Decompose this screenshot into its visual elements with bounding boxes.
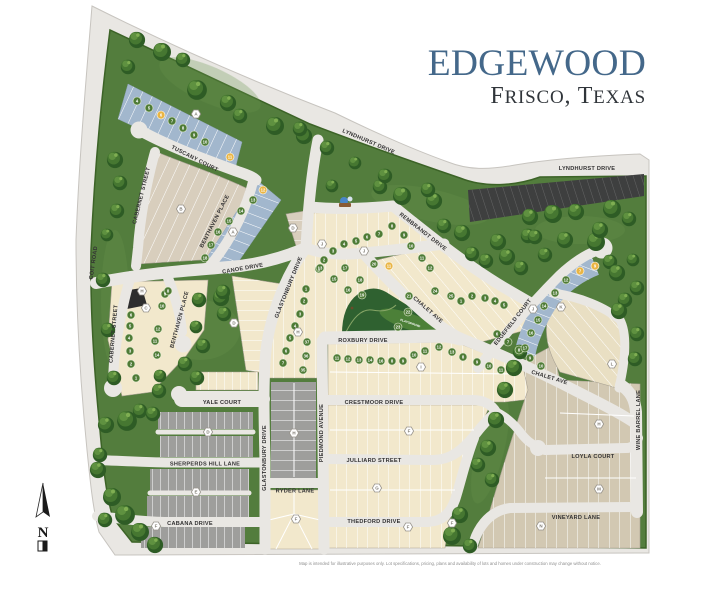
svg-text:13: 13 <box>450 350 455 355</box>
svg-text:H: H <box>292 431 295 436</box>
svg-text:11: 11 <box>335 356 340 361</box>
svg-text:E: E <box>194 490 197 495</box>
svg-text:18: 18 <box>203 256 208 261</box>
svg-text:17: 17 <box>343 266 348 271</box>
svg-text:25: 25 <box>449 294 454 299</box>
svg-text:JULLIARD STREET: JULLIARD STREET <box>346 458 401 464</box>
svg-text:16: 16 <box>346 288 351 293</box>
svg-text:RYDER LANE: RYDER LANE <box>276 489 315 495</box>
svg-text:20: 20 <box>372 262 377 267</box>
svg-text:F: F <box>451 521 454 526</box>
svg-text:15: 15 <box>536 318 541 323</box>
svg-text:14: 14 <box>368 358 373 363</box>
svg-text:18: 18 <box>358 278 363 283</box>
svg-text:12: 12 <box>156 327 161 332</box>
svg-text:13: 13 <box>251 198 256 203</box>
svg-text:10: 10 <box>409 244 414 249</box>
svg-text:L: L <box>611 362 614 367</box>
svg-text:CRESTMOOR DRIVE: CRESTMOOR DRIVE <box>345 400 404 406</box>
svg-text:F: F <box>407 525 410 530</box>
svg-text:21: 21 <box>407 294 412 299</box>
svg-text:10: 10 <box>203 140 208 145</box>
svg-text:11: 11 <box>423 349 428 354</box>
svg-text:THEDFORD DRIVE: THEDFORD DRIVE <box>347 519 400 525</box>
svg-text:23: 23 <box>396 325 401 330</box>
svg-text:11: 11 <box>420 256 425 261</box>
svg-text:ROXBURY DRIVE: ROXBURY DRIVE <box>338 338 388 344</box>
svg-text:CABANA DRIVE: CABANA DRIVE <box>167 521 213 527</box>
svg-text:14: 14 <box>155 353 160 358</box>
svg-text:14: 14 <box>542 304 547 309</box>
svg-text:H: H <box>296 330 299 335</box>
svg-text:YALE COURT: YALE COURT <box>203 400 242 406</box>
svg-text:PIEDMOND AVENUE: PIEDMOND AVENUE <box>319 404 325 462</box>
svg-text:H: H <box>140 289 143 294</box>
svg-text:F: F <box>155 524 158 529</box>
svg-text:N: N <box>38 525 49 541</box>
svg-text:I: I <box>420 365 421 370</box>
svg-text:24: 24 <box>433 289 438 294</box>
svg-text:Map is intended for illustrati: Map is intended for illustrative purpose… <box>299 561 601 566</box>
svg-text:WINE BARREL LANE: WINE BARREL LANE <box>636 390 642 450</box>
svg-text:12: 12 <box>437 345 442 350</box>
svg-text:35: 35 <box>301 368 306 373</box>
svg-text:G: G <box>375 486 379 491</box>
svg-text:15: 15 <box>332 277 337 282</box>
svg-text:11: 11 <box>228 155 233 160</box>
svg-text:17: 17 <box>209 243 214 248</box>
svg-text:17: 17 <box>523 346 528 351</box>
svg-text:LYNDHURST DRIVE: LYNDHURST DRIVE <box>559 166 615 172</box>
svg-text:FRISCO, TEXAS: FRISCO, TEXAS <box>490 83 646 109</box>
svg-text:13: 13 <box>357 358 362 363</box>
svg-text:M: M <box>597 487 601 492</box>
svg-text:12: 12 <box>261 188 266 193</box>
svg-text:10: 10 <box>412 353 417 358</box>
svg-text:16: 16 <box>529 331 534 336</box>
svg-text:13: 13 <box>318 266 323 271</box>
svg-text:19: 19 <box>360 293 365 298</box>
svg-text:11: 11 <box>387 264 392 269</box>
svg-text:12: 12 <box>346 357 351 362</box>
svg-text:13: 13 <box>553 291 558 296</box>
svg-text:10: 10 <box>539 364 544 369</box>
svg-text:11: 11 <box>153 339 158 344</box>
svg-text:10: 10 <box>160 304 165 309</box>
svg-text:10: 10 <box>487 364 492 369</box>
svg-text:16: 16 <box>379 359 384 364</box>
svg-text:37: 37 <box>305 340 310 345</box>
svg-text:14: 14 <box>239 209 244 214</box>
svg-text:SHERPERDS HILL LANE: SHERPERDS HILL LANE <box>170 462 240 468</box>
svg-text:H: H <box>597 422 600 427</box>
svg-text:12: 12 <box>428 266 433 271</box>
svg-text:GLASTONBURY DRIVE: GLASTONBURY DRIVE <box>262 425 268 491</box>
svg-text:VINEYARD LANE: VINEYARD LANE <box>552 515 600 521</box>
svg-text:15: 15 <box>227 219 232 224</box>
svg-text:16: 16 <box>216 230 221 235</box>
svg-text:LOYLA COURT: LOYLA COURT <box>572 454 615 460</box>
svg-text:12: 12 <box>564 278 569 283</box>
svg-text:N: N <box>539 524 542 529</box>
svg-text:22: 22 <box>406 310 411 315</box>
svg-text:F: F <box>408 429 411 434</box>
svg-text:F: F <box>295 517 298 522</box>
svg-text:EDGEWOOD: EDGEWOOD <box>428 43 646 84</box>
svg-text:36: 36 <box>304 354 309 359</box>
svg-text:11: 11 <box>499 368 504 373</box>
